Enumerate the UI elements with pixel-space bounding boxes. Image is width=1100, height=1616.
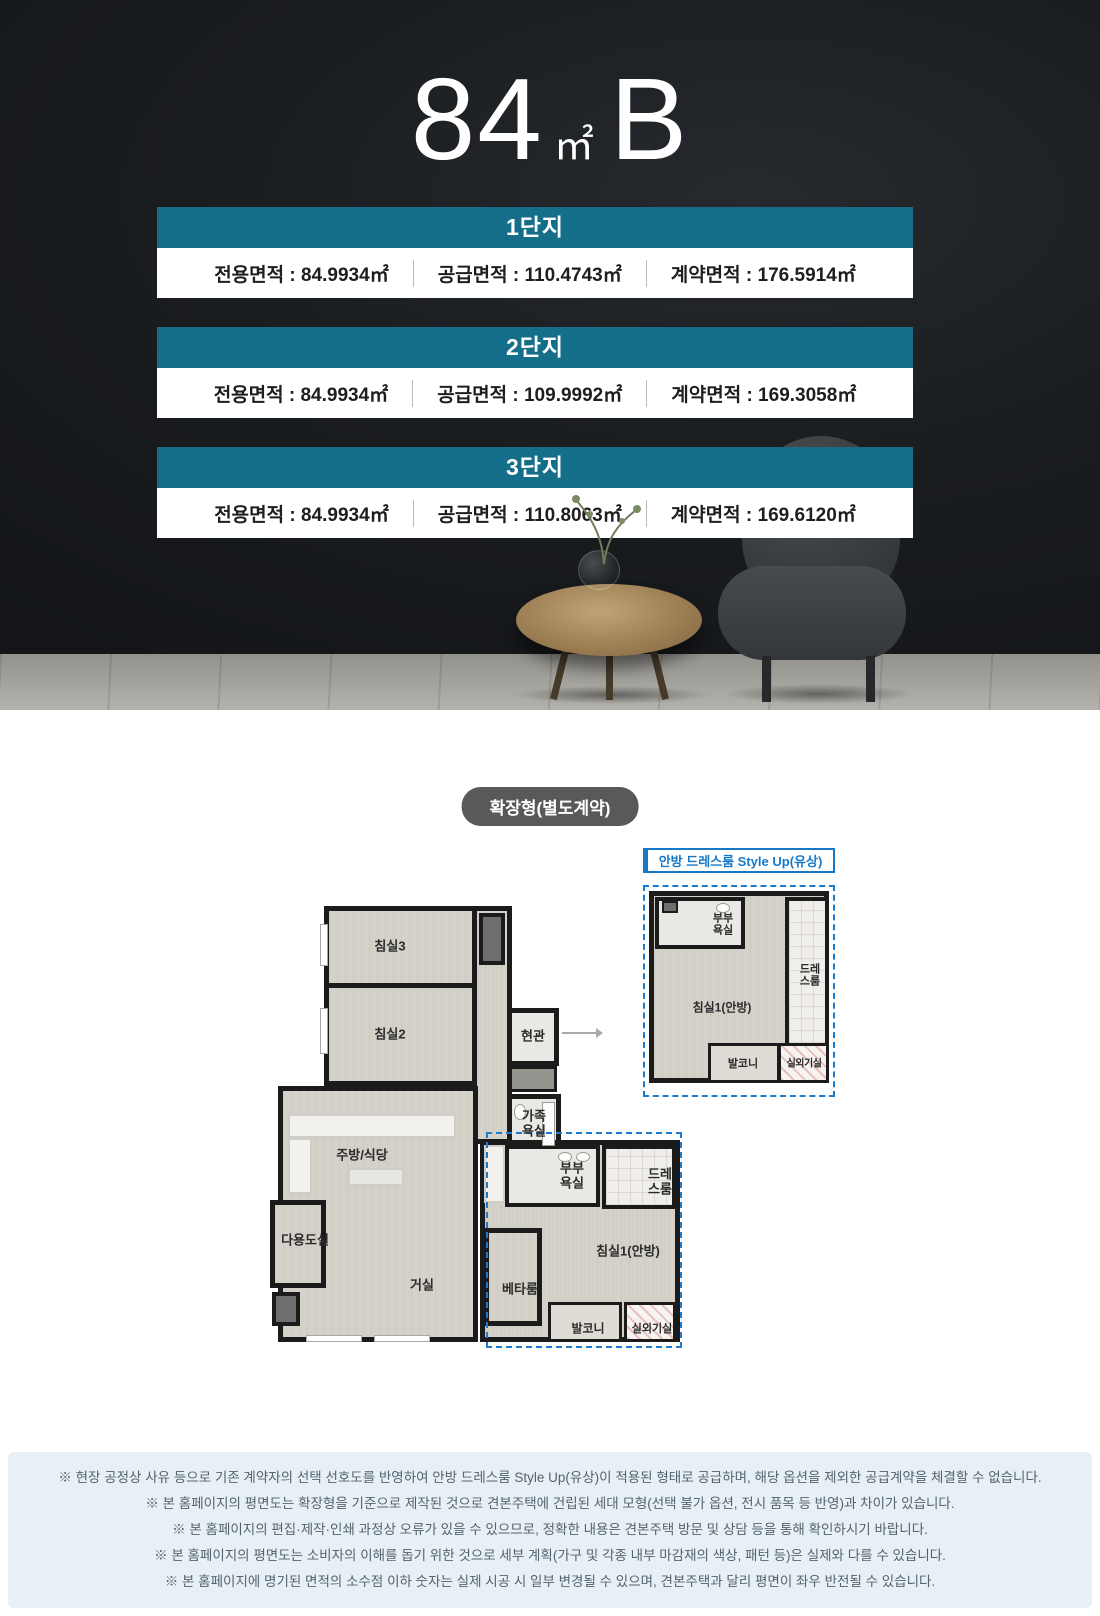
styleup-label-master-bedroom: 침실1(안방) [693,1001,752,1014]
title-type-letter: B [610,54,689,184]
kitchen-counter [288,1114,456,1138]
main-floorplan: 침실3 침실2 현관 가족욕실 주방/식당 다용도실 거실 부부욕실 드레스룸 … [270,900,682,1348]
disclaimer-note: ※ 현장 공정상 사유 등으로 기존 계약자의 선택 선호도를 반영하여 안방 … [8,1465,1092,1491]
room-label-family-bath: 가족욕실 [520,1109,548,1138]
armchair-seat-image [718,566,906,660]
styleup-title-box: 안방 드레스룸 Style Up(유상) [643,848,835,873]
wardrobe-block [479,913,505,965]
spec-exclusive-area: 전용면적 : 84.9934㎡ [214,380,389,407]
room-label-balcony: 발코니 [571,1322,604,1335]
room-label-beta: 베타룸 [502,1283,538,1298]
room-label-dressroom: 드레스룸 [646,1167,674,1196]
complex-1-block: 1단지 전용면적 : 84.9934㎡ 공급면적 : 110.4743㎡ 계약면… [157,207,913,298]
complex-3-block: 3단지 전용면적 : 84.9934㎡ 공급면적 : 110.8063㎡ 계약면… [157,447,913,538]
complex-2-block: 2단지 전용면적 : 84.9934㎡ 공급면적 : 109.9992㎡ 계약면… [157,327,913,418]
disclaimer-note: ※ 본 홈페이지의 평면도는 확장형을 기준으로 제작된 것으로 견본주택에 건… [8,1491,1092,1517]
kitchen-island [348,1168,404,1186]
living-window [306,1335,362,1342]
title-area-number: 84 [411,54,544,184]
complex-2-header: 2단지 [157,327,913,368]
spec-exclusive-area: 전용면적 : 84.9934㎡ [214,500,389,527]
spec-supply-area: 공급면적 : 109.9992㎡ [412,380,622,407]
complex-3-header: 3단지 [157,447,913,488]
complex-3-specs: 전용면적 : 84.9934㎡ 공급면적 : 110.8063㎡ 계약면적 : … [157,488,913,538]
complex-1-header: 1단지 [157,207,913,248]
kitchen-sink-counter [288,1138,312,1194]
expansion-type-badge: 확장형(별도계약) [462,787,639,826]
entry-arrow-icon [562,1032,596,1034]
spec-supply-area: 공급면적 : 110.4743㎡ [413,260,622,287]
styleup-label-dressroom: 드레스룸 [798,964,822,989]
room-label-living: 거실 [410,1279,434,1294]
chair-leg [866,656,875,702]
living-window [374,1335,430,1342]
window [320,924,328,966]
title-area-unit: ㎡ [554,124,596,168]
disclaimer-note: ※ 본 홈페이지의 평면도는 소비자의 이해를 돕기 위한 것으로 세부 계획(… [8,1543,1092,1569]
room-label-entrance: 현관 [521,1030,545,1045]
spec-exclusive-area: 전용면적 : 84.9934㎡ [214,260,389,287]
disclaimer-panel: ※ 현장 공정상 사유 등으로 기존 계약자의 선택 선호도를 반영하여 안방 … [8,1452,1092,1608]
chair-shadow [724,684,914,704]
spec-contract-area: 계약면적 : 169.6120㎡ [646,500,856,527]
room-label-master-bath: 부부욕실 [558,1161,586,1190]
styleup-label-outdoor-unit: 실외기실 [787,1058,822,1069]
styleup-floorplan: 안방 드레스룸 Style Up(유상) 부부욕실 드레스룸 침실1(안방) 발… [622,845,837,1100]
chair-leg [762,656,771,702]
branch-decor-image [552,486,662,566]
storage-block [272,1292,300,1326]
table-leg [606,650,613,700]
room-label-utility: 다용도실 [281,1234,329,1249]
unit-info-page: 84㎡B 1단지 전용면적 : 84.9934㎡ 공급면적 : 110.4743… [0,0,1100,1616]
side-table-image [516,584,702,656]
complex-2-specs: 전용면적 : 84.9934㎡ 공급면적 : 109.9992㎡ 계약면적 : … [157,368,913,418]
disclaimer-note: ※ 본 홈페이지의 편집·제작·인쇄 과정상 오류가 있을 수 있으므로, 정확… [8,1517,1092,1543]
shoe-closet-block [509,1066,557,1092]
hero-section: 84㎡B 1단지 전용면적 : 84.9934㎡ 공급면적 : 110.4743… [0,0,1100,710]
room-label-bedroom3: 침실3 [374,940,405,955]
unit-type-title: 84㎡B [0,56,1100,184]
complex-1-specs: 전용면적 : 84.9934㎡ 공급면적 : 110.4743㎡ 계약면적 : … [157,248,913,298]
disclaimer-note: ※ 본 홈페이지에 명기된 면적의 소수점 이하 숫자는 실제 시공 시 일부 … [8,1569,1092,1595]
room-label-bedroom2: 침실2 [374,1028,405,1043]
window [320,1008,328,1054]
room-label-master-bedroom: 침실1(안방) [596,1245,660,1260]
styleup-label-balcony: 발코니 [728,1058,758,1070]
styleup-label-master-bath: 부부욕실 [711,913,735,938]
room-label-outdoor-unit: 실외기실 [632,1323,672,1335]
room-label-kitchen: 주방/식당 [336,1149,387,1164]
spec-contract-area: 계약면적 : 169.3058㎡ [646,380,856,407]
spec-contract-area: 계약면적 : 176.5914㎡ [646,260,856,287]
